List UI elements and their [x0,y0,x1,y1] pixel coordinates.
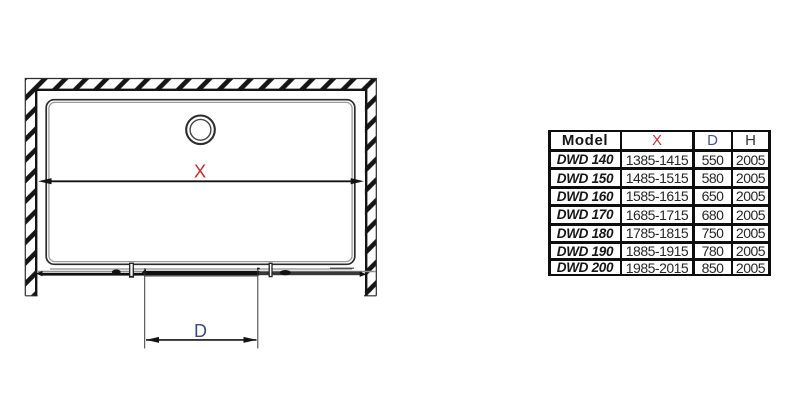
svg-text:D: D [194,321,207,341]
svg-text:X: X [194,161,206,182]
